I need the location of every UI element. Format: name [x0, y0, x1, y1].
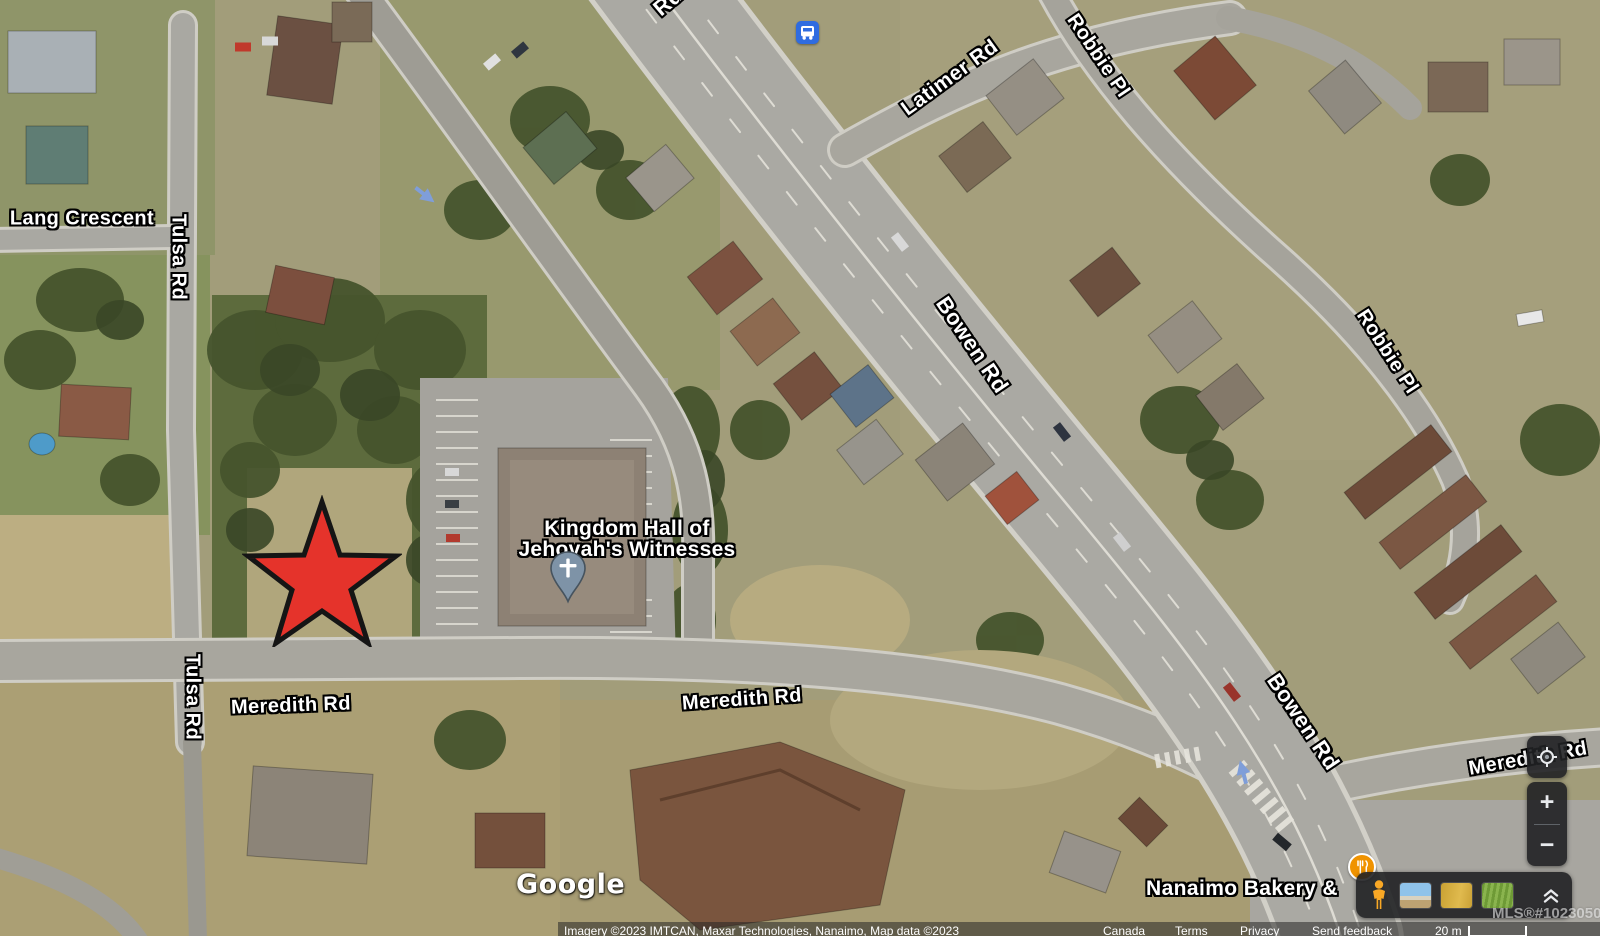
map-scale-label: 20 m	[1435, 924, 1462, 936]
coastline-imagery-thumbnail[interactable]	[1400, 883, 1431, 908]
green-field-imagery-thumbnail[interactable]	[1482, 883, 1513, 908]
red-star-annotation	[242, 495, 402, 647]
road-label-lang-crescent: Lang Crescent	[10, 208, 154, 231]
road-label-tulsa-rd-upper: Tulsa Rd	[167, 214, 190, 300]
map-attribution-bar: Imagery ©2023 IMTCAN, Maxar Technologies…	[558, 922, 1600, 936]
google-logo[interactable]: Google	[516, 869, 625, 900]
zoom-control: + −	[1527, 782, 1567, 866]
bus-transit-icon[interactable]	[796, 21, 819, 44]
double-chevron-up-icon	[1542, 887, 1560, 904]
crosshair-target-icon	[1536, 746, 1558, 768]
attribution-link-terms[interactable]: Terms	[1175, 924, 1208, 936]
golden-field-imagery-thumbnail[interactable]	[1441, 883, 1472, 908]
road-label-meredith-rd-left: Meredith Rd	[231, 692, 352, 719]
satellite-imagery[interactable]	[0, 0, 1600, 936]
my-location-button[interactable]	[1527, 736, 1567, 778]
map-scale-bar	[1468, 926, 1527, 936]
zoom-out-button[interactable]: −	[1527, 825, 1567, 867]
attribution-link-privacy[interactable]: Privacy	[1240, 924, 1279, 936]
zoom-in-button[interactable]: +	[1527, 782, 1567, 824]
street-view-pegman-icon[interactable]	[1368, 879, 1390, 911]
attribution-link-send-feedback[interactable]: Send feedback	[1312, 924, 1392, 936]
collapse-panel-button[interactable]	[1542, 887, 1560, 904]
google-maps-satellite-view: Rd Latimer Rd Robbie Pl Robbie Pl Bowen …	[0, 0, 1600, 936]
mls-listing-watermark: MLS®#1023050	[1492, 905, 1600, 922]
kingdom-hall-line1: Kingdom Hall of	[518, 518, 735, 539]
church-cross-pin-icon[interactable]	[550, 551, 586, 605]
road-label-tulsa-rd-lower: Tulsa Rd	[181, 654, 204, 740]
poi-label-nanaimo-bakery: Nanaimo Bakery &	[1146, 877, 1338, 901]
imagery-attribution: Imagery ©2023 IMTCAN, Maxar Technologies…	[564, 924, 959, 936]
attribution-link-canada[interactable]: Canada	[1103, 924, 1145, 936]
